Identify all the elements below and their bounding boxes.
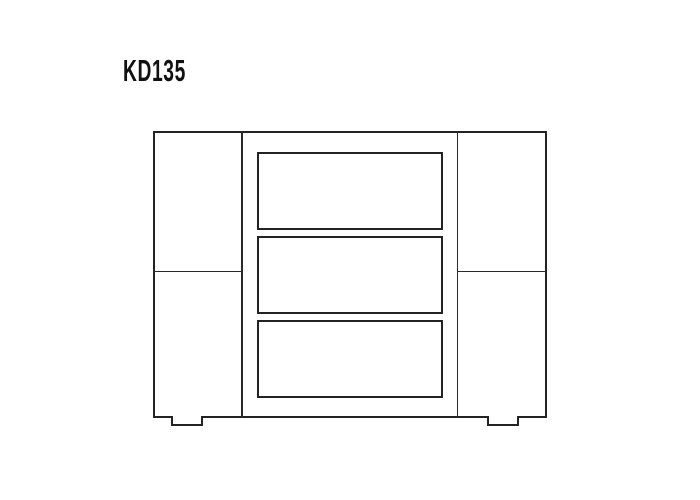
drawer-front-1 [257,152,443,230]
right-foot [487,416,519,426]
page-root: KD135 [0,0,700,500]
right-section-divider [457,131,459,418]
furniture-diagram [153,131,547,418]
product-title: KD135 [123,55,186,86]
drawer-front-2 [257,236,443,314]
left-foot [171,416,203,426]
right-door-seam [457,271,548,273]
left-door-seam [153,271,242,273]
drawer-front-3 [257,320,443,398]
left-section-divider [241,131,243,418]
